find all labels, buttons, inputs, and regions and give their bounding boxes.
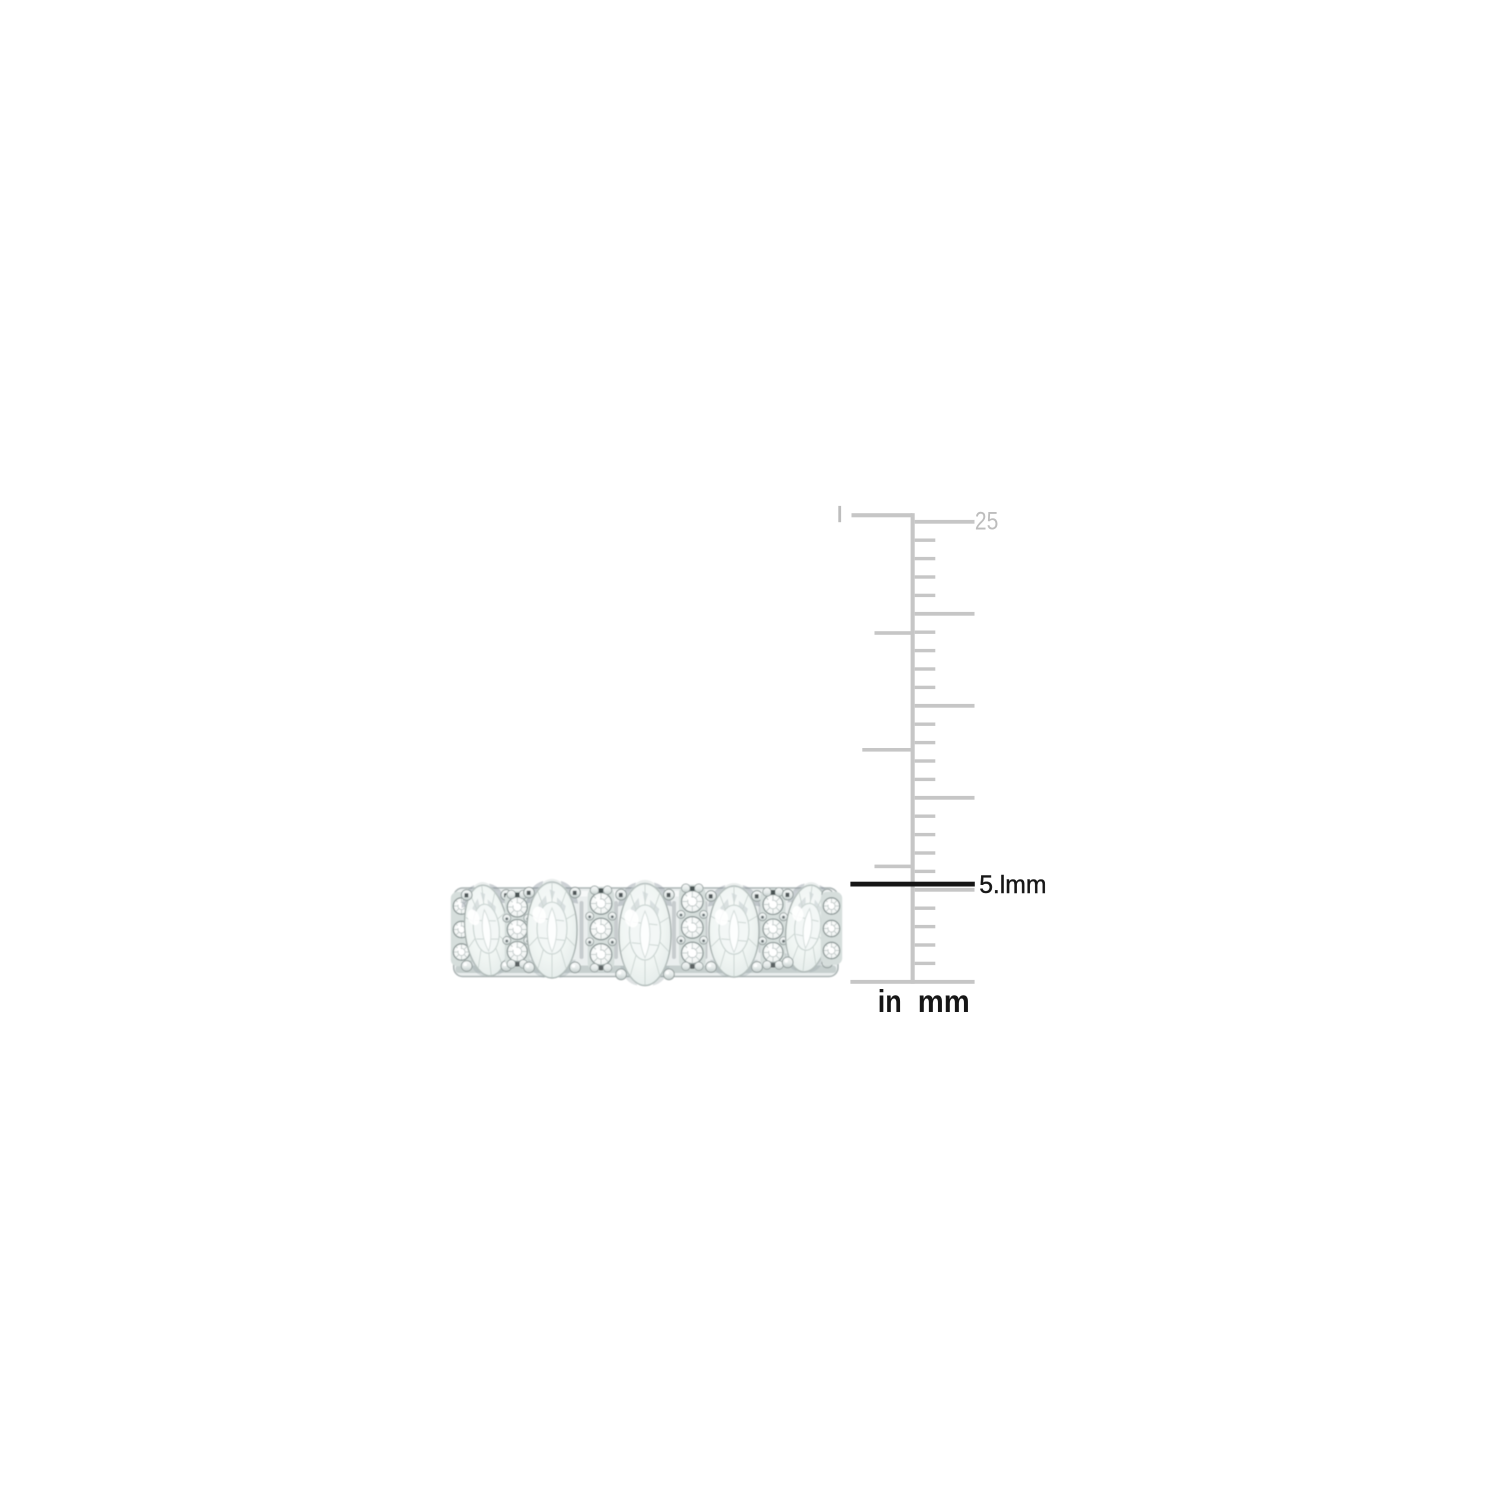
svg-text:25: 25 — [975, 509, 998, 536]
svg-text:mm: mm — [918, 983, 970, 1019]
svg-text:in: in — [878, 983, 902, 1019]
svg-text:5.lmm: 5.lmm — [979, 871, 1046, 899]
